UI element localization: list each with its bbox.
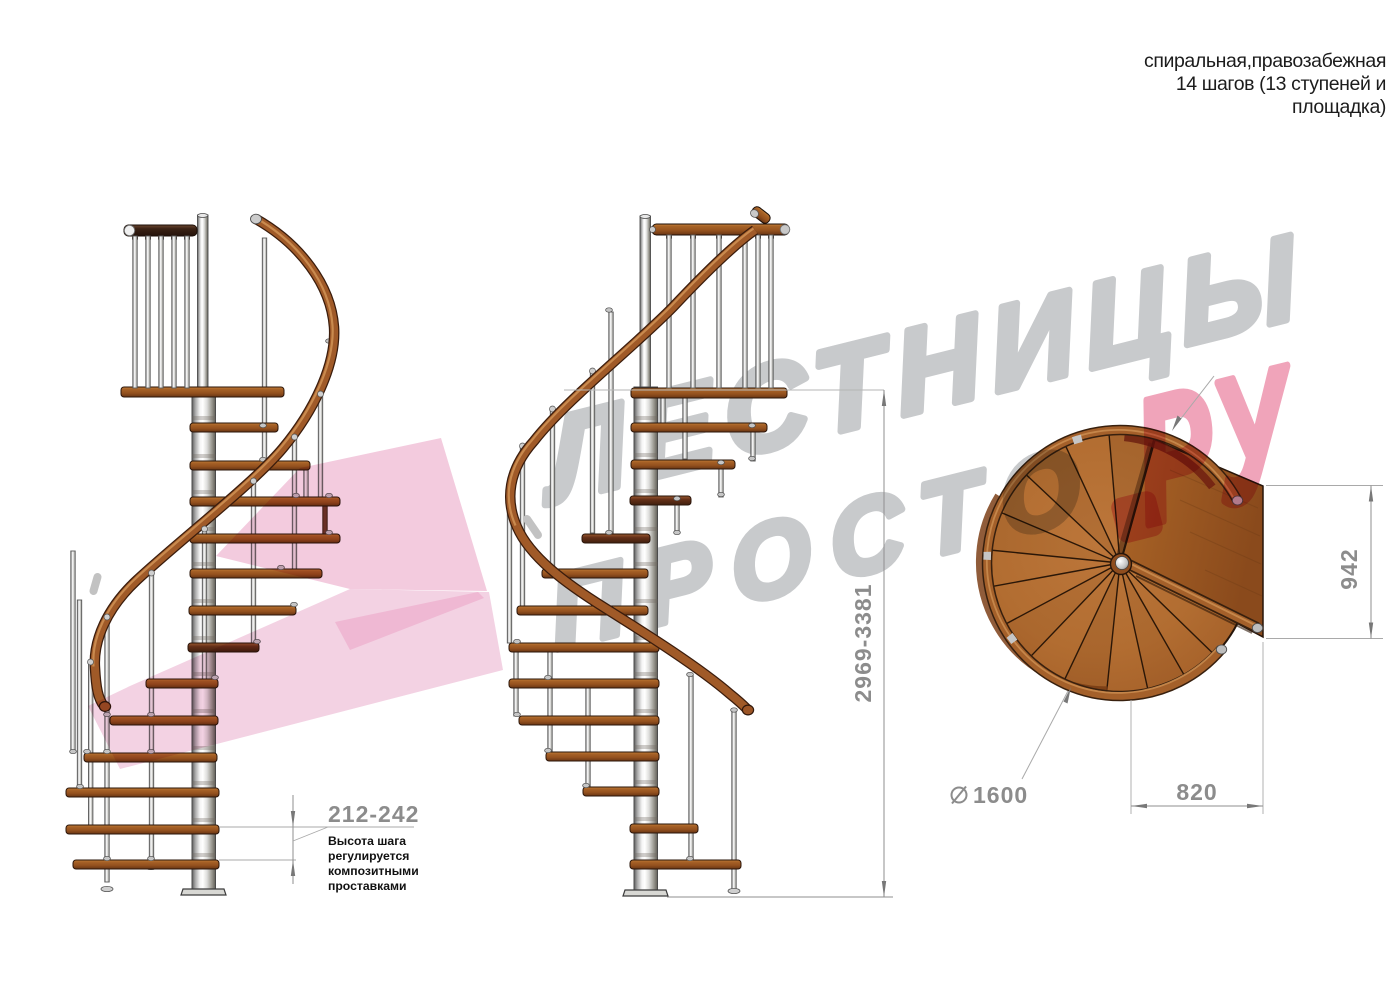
- svg-text:спиральная,правозабежная14 шаг: спиральная,правозабежная14 шагов (13 сту…: [1144, 50, 1386, 118]
- svg-text:Высота шагарегулируетсякомпози: Высота шагарегулируетсякомпозитнымипрост…: [328, 834, 419, 893]
- svg-text:820: 820: [1176, 779, 1217, 805]
- svg-text:РУ: РУ: [1124, 327, 1311, 562]
- svg-text:942: 942: [1336, 548, 1362, 589]
- svg-text:1600: 1600: [973, 782, 1028, 808]
- svg-text:212-242: 212-242: [328, 801, 419, 827]
- svg-text:2969-3381: 2969-3381: [850, 584, 876, 703]
